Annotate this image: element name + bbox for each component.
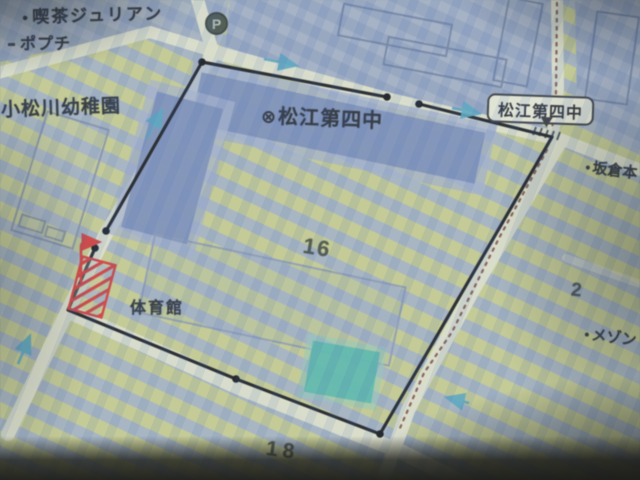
bullet-icon: ● xyxy=(585,162,592,173)
parking-icon: P xyxy=(205,12,228,35)
label-block-16: 16 xyxy=(301,235,333,261)
school-map-symbol-icon: ⊗ xyxy=(261,106,278,127)
pool xyxy=(297,334,387,411)
label-block-18: 18 xyxy=(265,438,301,463)
label-block-2: 2 xyxy=(570,280,583,300)
callout-matsue-dai4-junior-high: 松江第四中 xyxy=(487,93,595,126)
bullet-icon: ● xyxy=(584,329,591,340)
map-scene: ●喫茶ジュリアン ポプチ 小松川幼稚園 ⊗松江第四中 松江第四中 P ●坂倉本 … xyxy=(0,0,640,480)
map-photo: ●喫茶ジュリアン ポプチ 小松川幼稚園 ⊗松江第四中 松江第四中 P ●坂倉本 … xyxy=(0,0,640,480)
label-matsue-dai4-junior-high: ⊗松江第四中 xyxy=(261,106,384,131)
label-cafe-julian: ●喫茶ジュリアン xyxy=(22,5,164,26)
bullet-icon: ● xyxy=(22,13,30,24)
label-komatsugawa-kindergarten: 小松川幼稚園 xyxy=(1,97,122,120)
label-popuchi: ポプチ xyxy=(8,37,71,53)
label-gymnasium: 体育館 xyxy=(130,301,184,317)
